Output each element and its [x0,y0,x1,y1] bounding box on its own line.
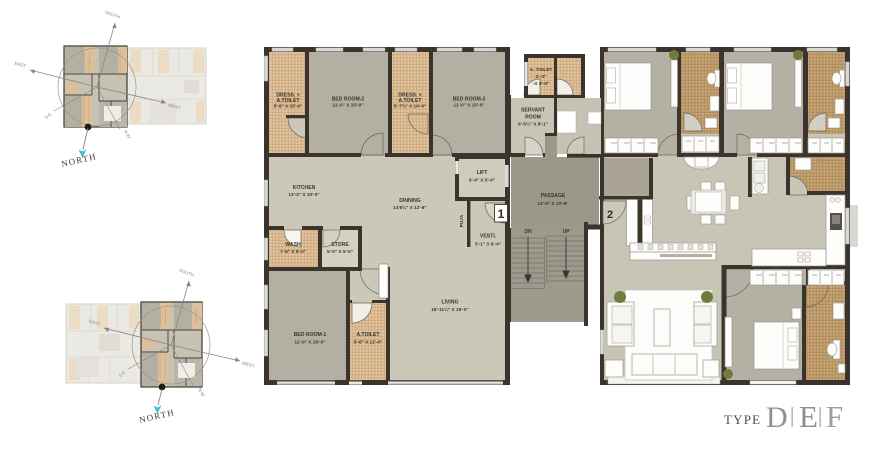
svg-text:1: 1 [498,207,505,221]
svg-text:E: E [799,399,818,434]
svg-text:LIFT: LIFT [477,170,489,176]
svg-text:5'-6" X 12'-0": 5'-6" X 12'-0" [354,340,383,345]
svg-text:11'-0" X 16'-0": 11'-0" X 16'-0" [295,340,326,345]
svg-text:STORE: STORE [331,242,349,248]
svg-text:7'-6" X 5'-0": 7'-6" X 5'-0" [280,249,306,254]
svg-text:13'-2" X 10'-0": 13'-2" X 10'-0" [288,192,319,197]
svg-text:14'6¼" X 12'-8": 14'6¼" X 12'-8" [393,204,427,210]
svg-text:LIVING: LIVING [442,300,459,306]
svg-text:BED ROOM-3: BED ROOM-3 [453,97,486,103]
svg-text:BED ROOM-2: BED ROOM-2 [332,97,365,103]
svg-text:KITCHEN: KITCHEN [293,185,316,191]
svg-text:ROOM: ROOM [525,115,541,121]
svg-text:2: 2 [607,209,613,221]
svg-text:6'-5¼" X 8'-1": 6'-5¼" X 8'-1" [518,121,548,127]
svg-text:TYPE: TYPE [724,412,761,427]
svg-text:F: F [826,399,843,434]
svg-text:5'-1" X 6'-4": 5'-1" X 6'-4" [475,242,501,247]
svg-text:12'-5" X 10'-8": 12'-5" X 10'-8" [537,201,568,206]
svg-text:2'-3": 2'-3" [536,74,547,80]
svg-text:BED ROOM-1: BED ROOM-1 [294,332,327,338]
svg-text:16'-11¼" X 19'-0": 16'-11¼" X 19'-0" [431,306,468,312]
svg-text:11'-0" X 15'-0": 11'-0" X 15'-0" [454,103,485,108]
svg-text:6'-4" X 5'-4": 6'-4" X 5'-4" [469,178,495,183]
svg-text:A.TOILET: A.TOILET [356,332,380,338]
svg-text:DINNING: DINNING [399,198,421,204]
svg-text:PASSAGE: PASSAGE [541,193,566,199]
svg-text:5'-0" X 5'-0": 5'-0" X 5'-0" [327,249,353,254]
svg-text:11'-0" X 15'-0": 11'-0" X 15'-0" [333,103,364,108]
svg-text:5'-7¼" X 14'-0": 5'-7¼" X 14'-0" [394,103,426,109]
svg-text:PUJA: PUJA [459,214,464,227]
svg-text:A. TOILET: A. TOILET [530,67,553,73]
svg-text:5'-6" X 15'-0": 5'-6" X 15'-0" [274,104,303,109]
svg-text:SERVANT: SERVANT [521,108,546,114]
svg-text:WASH: WASH [285,242,301,248]
svg-text:UP: UP [562,229,570,235]
svg-text:VESTI.: VESTI. [480,234,497,240]
svg-text:DN: DN [524,229,532,235]
svg-text:D: D [766,401,788,434]
svg-text:-X 5'-0": -X 5'-0" [533,81,550,87]
